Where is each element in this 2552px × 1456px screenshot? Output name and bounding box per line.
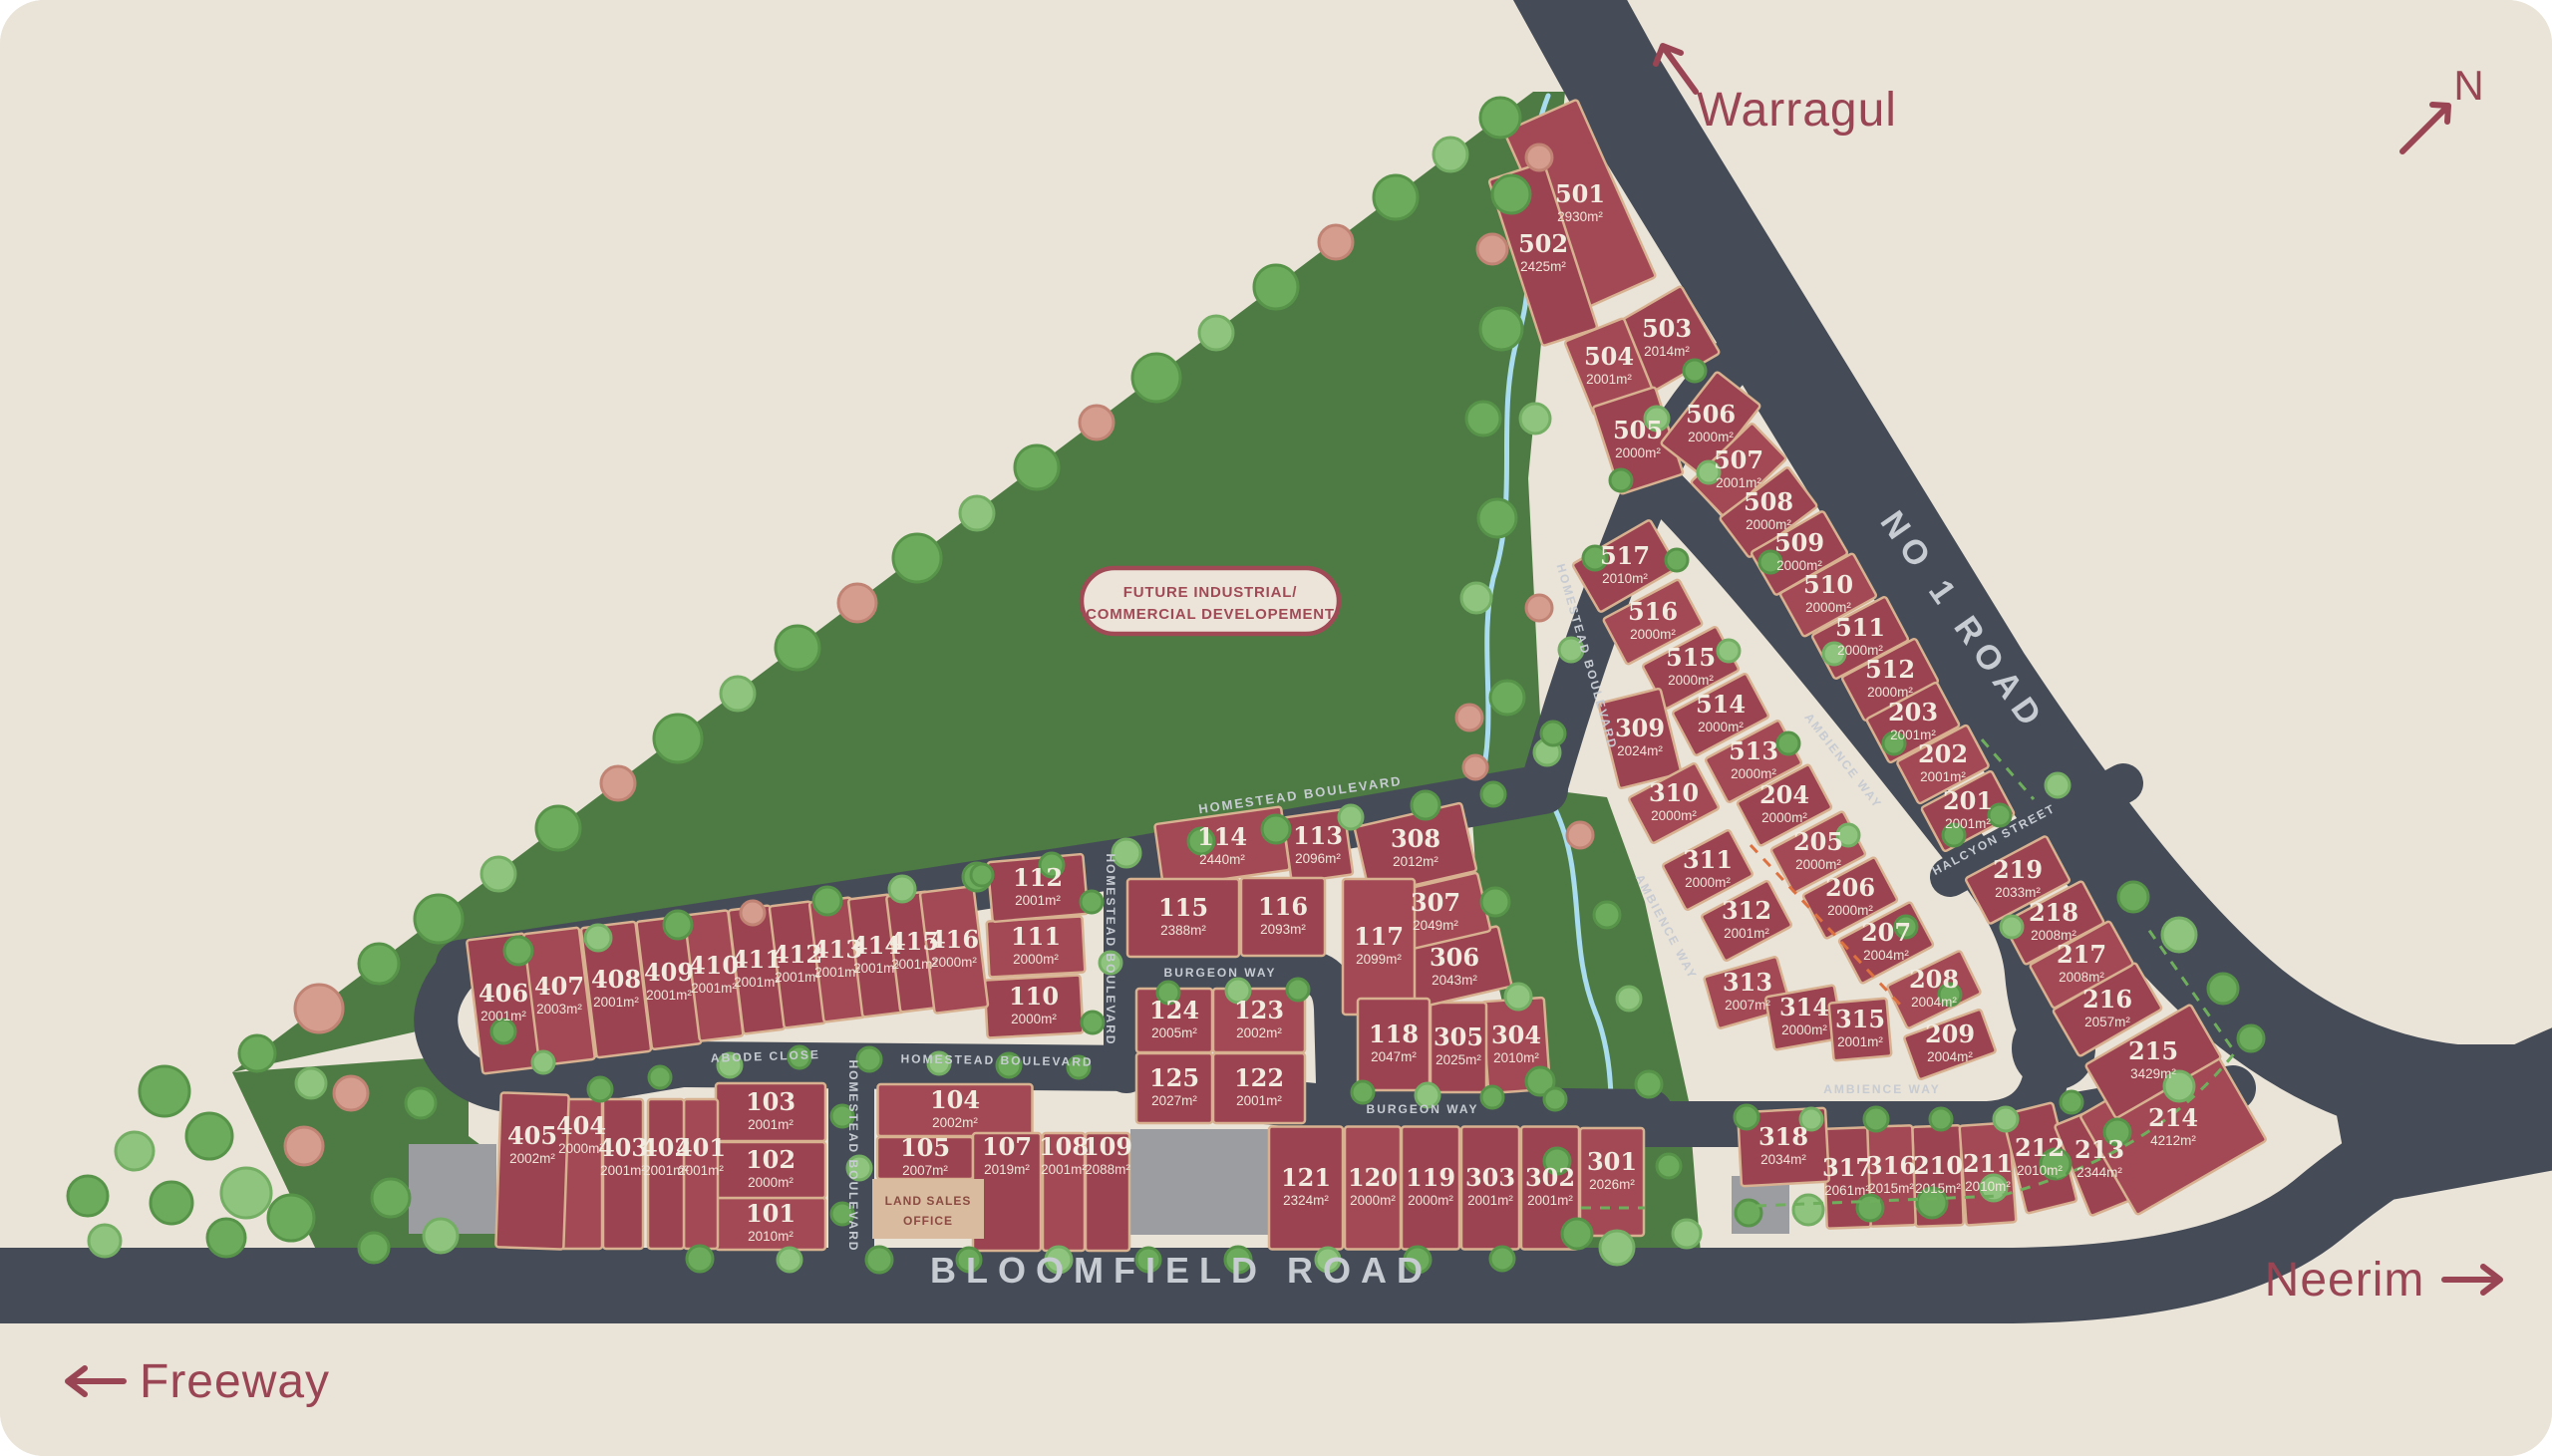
lot-number-206: 206 — [1825, 873, 1875, 902]
tree-icon — [1199, 316, 1233, 350]
tree-icon — [1456, 705, 1482, 730]
tree-icon — [585, 925, 611, 951]
lot-number-318: 318 — [1758, 1122, 1808, 1151]
lot-number-312: 312 — [1722, 896, 1771, 925]
existing-parcel — [409, 1144, 496, 1234]
tree-icon — [536, 806, 580, 850]
lot-number-101: 101 — [746, 1199, 796, 1228]
tree-icon — [359, 1233, 389, 1263]
lot-number-118: 118 — [1369, 1019, 1419, 1048]
tree-icon — [1544, 1088, 1566, 1110]
tree-icon — [776, 626, 819, 670]
tree-icon — [285, 1127, 323, 1165]
tree-icon — [1287, 979, 1309, 1001]
tree-icon — [2046, 773, 2070, 797]
lot-number-305: 305 — [1434, 1022, 1483, 1051]
tree-icon — [1132, 354, 1180, 402]
tree-icon — [838, 584, 876, 622]
tree-icon — [151, 1182, 192, 1224]
tree-icon — [406, 1088, 436, 1118]
lot-number-124: 124 — [1149, 996, 1199, 1024]
street-label: BLOOMFIELD ROAD — [930, 1250, 1433, 1291]
lot-number-213: 213 — [2074, 1135, 2124, 1164]
lot-number-505: 505 — [1613, 416, 1663, 444]
lot-area-309: 2024m² — [1617, 743, 1663, 758]
lot-area-211: 2010m² — [1965, 1179, 2011, 1194]
land-sales-office-label: LAND SALES — [885, 1194, 972, 1208]
lot-area-404: 2000m² — [558, 1141, 604, 1156]
tree-icon — [1481, 888, 1509, 916]
tree-icon — [1610, 469, 1632, 491]
street-label: HOMESTEAD BOULEVARD — [1104, 853, 1117, 1045]
lot-number-511: 511 — [1835, 613, 1885, 642]
lot-area-206: 2000m² — [1827, 903, 1873, 918]
lot-area-122: 2001m² — [1236, 1093, 1282, 1108]
tree-icon — [1463, 755, 1487, 779]
lot-area-411: 2001m² — [734, 975, 780, 990]
lot-area-108: 2001m² — [1041, 1162, 1087, 1177]
tree-icon — [186, 1113, 232, 1159]
lot-number-212: 212 — [2015, 1133, 2065, 1162]
lot-number-402: 402 — [641, 1133, 691, 1162]
lot-number-311: 311 — [1683, 845, 1733, 874]
lot-area-120: 2000m² — [1350, 1193, 1396, 1208]
street-label: BURGEON WAY — [1367, 1102, 1479, 1116]
lot-area-205: 2000m² — [1795, 857, 1841, 872]
lot-area-213: 2344m² — [2076, 1165, 2122, 1180]
lot-area-103: 2001m² — [748, 1117, 794, 1132]
lot-area-208: 2004m² — [1911, 995, 1957, 1010]
lot-number-301: 301 — [1587, 1147, 1637, 1176]
lot-number-506: 506 — [1686, 400, 1736, 429]
lot-number-512: 512 — [1865, 655, 1915, 684]
tree-icon — [372, 1179, 410, 1217]
lot-area-513: 2000m² — [1731, 766, 1776, 781]
tree-icon — [866, 1247, 892, 1273]
tree-icon — [1684, 360, 1706, 382]
lot-area-515: 2000m² — [1668, 673, 1714, 688]
tree-icon — [1434, 138, 1467, 171]
tree-icon — [1718, 640, 1740, 662]
lot-number-211: 211 — [1963, 1149, 2013, 1178]
tree-icon — [532, 1051, 554, 1073]
lot-number-516: 516 — [1628, 597, 1678, 626]
lot-number-125: 125 — [1149, 1063, 1199, 1092]
tree-icon — [1520, 404, 1550, 434]
map-generated-layers: 5012930m²5022425m²5032014m²5042001m²5052… — [0, 0, 2552, 1456]
tree-icon — [2208, 974, 2238, 1004]
tree-icon — [1617, 987, 1641, 1011]
tree-icon — [1080, 406, 1114, 439]
lot-area-209: 2004m² — [1927, 1049, 1973, 1064]
tree-icon — [893, 534, 941, 582]
lot-number-303: 303 — [1465, 1163, 1515, 1192]
lot-area-219: 2033m² — [1995, 885, 2041, 900]
lot-number-406: 406 — [478, 979, 528, 1008]
lot-number-504: 504 — [1584, 342, 1634, 371]
lot-number-507: 507 — [1714, 445, 1763, 474]
lot-number-113: 113 — [1293, 821, 1343, 850]
lot-area-317: 2061m² — [1824, 1183, 1870, 1198]
lot-area-112: 2001m² — [1015, 893, 1061, 908]
lot-number-122: 122 — [1234, 1063, 1284, 1092]
tree-icon — [1636, 1071, 1662, 1097]
lot-area-114: 2440m² — [1199, 852, 1245, 867]
lot-area-113: 2096m² — [1295, 851, 1341, 866]
lot-number-209: 209 — [1925, 1019, 1975, 1048]
lot-number-405: 405 — [507, 1121, 557, 1150]
tree-icon — [1857, 1195, 1883, 1221]
lot-area-402: 2001m² — [643, 1163, 689, 1178]
tree-icon — [1930, 1108, 1952, 1130]
lot-area-305: 2025m² — [1435, 1052, 1481, 1067]
lot-number-110: 110 — [1009, 982, 1059, 1011]
existing-parcel — [1130, 1129, 1268, 1235]
tree-icon — [296, 1068, 326, 1098]
tree-icon — [1526, 145, 1552, 170]
tree-icon — [1777, 732, 1799, 754]
lot-area-116: 2093m² — [1260, 922, 1306, 937]
lot-area-109: 2088m² — [1085, 1162, 1130, 1177]
lot-number-217: 217 — [2057, 940, 2106, 969]
lot-area-302: 2001m² — [1527, 1193, 1573, 1208]
lot-area-216: 2057m² — [2084, 1015, 2130, 1029]
tree-icon — [1490, 1247, 1514, 1271]
lot-number-304: 304 — [1491, 1020, 1541, 1049]
tree-icon — [741, 901, 765, 925]
lot-area-503: 2014m² — [1644, 344, 1690, 359]
tree-icon — [1594, 902, 1620, 928]
tree-icon — [424, 1219, 458, 1253]
tree-icon — [1015, 445, 1059, 489]
lot-area-123: 2002m² — [1236, 1025, 1282, 1040]
lot-area-102: 2000m² — [748, 1175, 794, 1190]
tree-icon — [268, 1195, 314, 1241]
lot-number-216: 216 — [2082, 985, 2132, 1014]
lot-number-409: 409 — [644, 958, 694, 987]
lot-number-306: 306 — [1430, 943, 1479, 972]
tree-icon — [1567, 822, 1593, 848]
tree-icon — [601, 766, 635, 800]
tree-icon — [116, 1132, 154, 1170]
neerim-label: Neerim — [2265, 1254, 2425, 1307]
tree-icon — [1480, 98, 1520, 138]
lot-number-201: 201 — [1943, 786, 1993, 815]
lot-number-203: 203 — [1888, 698, 1938, 727]
lot-area-303: 2001m² — [1467, 1193, 1513, 1208]
tree-icon — [2001, 916, 2023, 938]
tree-icon — [1736, 1200, 1761, 1226]
tree-icon — [1352, 1081, 1374, 1103]
tree-icon — [1541, 722, 1565, 745]
lot-area-306: 2043m² — [1432, 973, 1477, 988]
tree-icon — [239, 1035, 275, 1071]
lot-number-509: 509 — [1774, 528, 1824, 557]
lot-number-119: 119 — [1406, 1163, 1455, 1192]
lot-area-514: 2000m² — [1698, 720, 1744, 734]
tree-icon — [359, 944, 399, 984]
tree-icon — [1735, 1105, 1758, 1129]
lot-number-313: 313 — [1723, 968, 1772, 997]
lot-area-506: 2000m² — [1688, 430, 1734, 444]
lot-number-510: 510 — [1803, 570, 1853, 599]
lot-area-314: 2000m² — [1781, 1022, 1827, 1037]
tree-icon — [1262, 815, 1290, 843]
tree-icon — [2162, 918, 2196, 952]
lot-area-115: 2388m² — [1160, 923, 1206, 938]
lot-number-117: 117 — [1354, 922, 1404, 951]
lot-area-110: 2000m² — [1011, 1012, 1057, 1026]
lot-number-515: 515 — [1666, 643, 1716, 672]
lot-area-410: 2001m² — [691, 981, 737, 996]
lot-number-115: 115 — [1158, 893, 1208, 922]
tree-icon — [1461, 583, 1491, 613]
lot-number-309: 309 — [1615, 714, 1665, 742]
tree-icon — [1492, 175, 1530, 213]
tree-icon — [1254, 265, 1298, 309]
warragul-label: Warragul — [1697, 84, 1897, 137]
lot-area-117: 2099m² — [1356, 952, 1402, 967]
lot-number-208: 208 — [1909, 965, 1959, 994]
tree-icon — [588, 1077, 612, 1101]
tree-icon — [207, 1219, 245, 1257]
tree-icon — [1666, 549, 1688, 571]
lot-area-304: 2010m² — [1493, 1050, 1539, 1065]
lot-number-114: 114 — [1197, 822, 1247, 851]
tree-icon — [960, 496, 994, 530]
lot-area-301: 2026m² — [1589, 1177, 1635, 1192]
tree-icon — [1481, 1086, 1503, 1108]
lot-number-314: 314 — [1779, 993, 1829, 1021]
tree-icon — [1480, 308, 1522, 350]
lot-area-405: 2002m² — [509, 1151, 555, 1166]
lot-number-501: 501 — [1555, 179, 1605, 208]
tree-icon — [1481, 782, 1505, 806]
tree-icon — [2061, 1091, 2082, 1113]
lot-number-514: 514 — [1696, 690, 1746, 719]
lot-area-408: 2001m² — [593, 995, 639, 1010]
land-sales-office-label: OFFICE — [903, 1214, 953, 1228]
tree-icon — [1526, 595, 1552, 621]
tree-icon — [1673, 1220, 1701, 1248]
lot-number-317: 317 — [1822, 1153, 1872, 1182]
lot-number-112: 112 — [1013, 863, 1063, 892]
lot-area-517: 2010m² — [1602, 571, 1648, 586]
tree-icon — [1319, 225, 1353, 259]
lot-area-105: 2007m² — [902, 1163, 948, 1178]
street-label: AMBIENCE WAY — [1823, 1082, 1941, 1096]
tree-icon — [778, 1248, 801, 1272]
lot-number-219: 219 — [1993, 855, 2043, 884]
freeway-label: Freeway — [140, 1355, 330, 1408]
lot-number-316: 316 — [1866, 1151, 1916, 1180]
lot-area-107: 2019m² — [984, 1162, 1030, 1177]
lot-area-516: 2000m² — [1630, 627, 1676, 642]
tree-icon — [721, 677, 755, 711]
lot-area-318: 2034m² — [1760, 1152, 1806, 1167]
lot-number-513: 513 — [1729, 736, 1778, 765]
tree-icon — [889, 876, 915, 902]
tree-icon — [1412, 791, 1439, 819]
lot-area-104: 2002m² — [932, 1115, 978, 1130]
tree-icon — [1600, 1231, 1634, 1265]
lot-number-404: 404 — [556, 1111, 606, 1140]
street-label: BURGEON WAY — [1164, 966, 1277, 980]
lot-area-416: 2000m² — [931, 955, 977, 970]
lot-number-207: 207 — [1861, 918, 1911, 947]
tree-icon — [1490, 681, 1524, 715]
lot-area-315: 2001m² — [1837, 1034, 1883, 1049]
tree-icon — [1994, 1107, 2018, 1131]
tree-icon — [295, 985, 343, 1032]
tree-icon — [654, 715, 702, 762]
future-development-label: FUTURE INDUSTRIAL/ — [1123, 584, 1297, 601]
lot-area-119: 2000m² — [1408, 1193, 1453, 1208]
lot-number-102: 102 — [746, 1145, 796, 1174]
lot-area-111: 2000m² — [1013, 952, 1059, 967]
future-development-pill — [1082, 568, 1339, 634]
lot-area-125: 2027m² — [1151, 1093, 1197, 1108]
tree-icon — [687, 1246, 713, 1272]
lot-number-104: 104 — [930, 1085, 980, 1114]
lot-area-505: 2000m² — [1615, 445, 1661, 460]
north-compass-label: N — [2453, 62, 2484, 109]
tree-icon — [1505, 984, 1531, 1010]
lot-area-118: 2047m² — [1371, 1049, 1417, 1064]
lot-number-202: 202 — [1918, 739, 1968, 768]
lot-number-204: 204 — [1759, 780, 1809, 809]
lot-area-313: 2007m² — [1725, 998, 1770, 1013]
tree-icon — [68, 1176, 108, 1216]
lot-area-409: 2001m² — [646, 988, 692, 1003]
street-label: HOMESTEAD BOULEVARD — [846, 1059, 860, 1252]
future-development-label: COMMERCIAL DEVELOPEMENT — [1086, 606, 1335, 623]
lot-number-502: 502 — [1518, 229, 1568, 258]
tree-icon — [89, 1225, 121, 1257]
lot-area-307: 2049m² — [1413, 918, 1458, 933]
lot-number-116: 116 — [1258, 892, 1308, 921]
lot-number-416: 416 — [929, 925, 979, 954]
lot-area-308: 2012m² — [1393, 854, 1438, 869]
land-sales-office — [872, 1179, 984, 1239]
lot-area-406: 2001m² — [480, 1009, 526, 1023]
tree-icon — [2118, 882, 2148, 912]
lot-area-203: 2001m² — [1890, 728, 1936, 742]
tree-icon — [1082, 1012, 1104, 1033]
lot-area-210: 2015m² — [1915, 1181, 1961, 1196]
lot-number-307: 307 — [1411, 888, 1460, 917]
lot-area-403: 2001m² — [600, 1163, 646, 1178]
lot-number-214: 214 — [2148, 1103, 2198, 1132]
tree-icon — [971, 864, 993, 886]
tree-icon — [334, 1076, 368, 1110]
lot-area-124: 2005m² — [1151, 1025, 1197, 1040]
lot-number-308: 308 — [1391, 824, 1440, 853]
tree-icon — [664, 911, 692, 939]
lot-area-202: 2001m² — [1920, 769, 1966, 784]
tree-icon — [649, 1066, 671, 1088]
tree-icon — [415, 895, 463, 943]
road — [2343, 1106, 2552, 1148]
lot-number-120: 120 — [1348, 1163, 1398, 1192]
lot-number-210: 210 — [1913, 1151, 1963, 1180]
lot-number-108: 108 — [1039, 1132, 1089, 1161]
masterplan-canvas: 5012930m²5022425m²5032014m²5042001m²5052… — [0, 0, 2552, 1456]
lot-number-517: 517 — [1600, 541, 1650, 570]
tree-icon — [1864, 1107, 1888, 1131]
lot-area-407: 2003m² — [536, 1002, 582, 1017]
lot-area-207: 2004m² — [1863, 948, 1909, 963]
lot-area-311: 2000m² — [1685, 875, 1731, 890]
lot-area-101: 2010m² — [748, 1229, 794, 1244]
lot-area-218: 2008m² — [2031, 928, 2076, 943]
tree-icon — [2238, 1025, 2264, 1051]
lot-area-215: 3429m² — [2130, 1066, 2176, 1081]
lot-area-310: 2000m² — [1651, 808, 1697, 823]
lot-number-503: 503 — [1642, 314, 1692, 343]
lot-number-123: 123 — [1234, 996, 1284, 1024]
lot-number-215: 215 — [2128, 1036, 2178, 1065]
tree-icon — [1562, 1219, 1592, 1249]
lot-number-109: 109 — [1083, 1132, 1132, 1161]
lot-area-504: 2001m² — [1586, 372, 1632, 387]
tree-icon — [221, 1168, 271, 1218]
lot-number-121: 121 — [1281, 1163, 1331, 1192]
lot-area-201: 2001m² — [1945, 816, 1991, 831]
lot-number-218: 218 — [2029, 898, 2078, 927]
lot-area-502: 2425m² — [1520, 259, 1566, 274]
tree-icon — [140, 1066, 189, 1116]
lot-number-407: 407 — [534, 972, 584, 1001]
tree-icon — [1081, 891, 1103, 913]
lot-area-212: 2010m² — [2017, 1163, 2063, 1178]
lot-number-103: 103 — [746, 1087, 796, 1116]
lot-area-217: 2008m² — [2059, 970, 2104, 985]
lot-area-214: 4212m² — [2150, 1133, 2196, 1148]
lot-number-105: 105 — [900, 1133, 950, 1162]
tree-icon — [1657, 1154, 1681, 1178]
lot-area-121: 2324m² — [1283, 1193, 1329, 1208]
tree-icon — [504, 937, 532, 965]
lot-number-302: 302 — [1525, 1163, 1575, 1192]
tree-icon — [1477, 234, 1507, 264]
tree-icon — [813, 887, 841, 915]
lot-number-508: 508 — [1744, 487, 1793, 516]
lot-number-205: 205 — [1793, 827, 1843, 856]
tree-icon — [1466, 402, 1500, 436]
lot-area-501: 2930m² — [1557, 209, 1603, 224]
tree-icon — [1478, 499, 1516, 537]
lot-area-316: 2015m² — [1868, 1181, 1914, 1196]
lot-number-315: 315 — [1835, 1005, 1885, 1033]
lot-number-310: 310 — [1649, 778, 1699, 807]
tree-icon — [481, 857, 515, 891]
lot-number-111: 111 — [1011, 922, 1061, 951]
tree-icon — [1374, 175, 1418, 219]
lot-number-408: 408 — [591, 965, 641, 994]
lot-number-107: 107 — [982, 1132, 1032, 1161]
tree-icon — [1793, 1195, 1823, 1225]
lot-area-312: 2001m² — [1724, 926, 1769, 941]
lot-area-204: 2000m² — [1761, 810, 1807, 825]
